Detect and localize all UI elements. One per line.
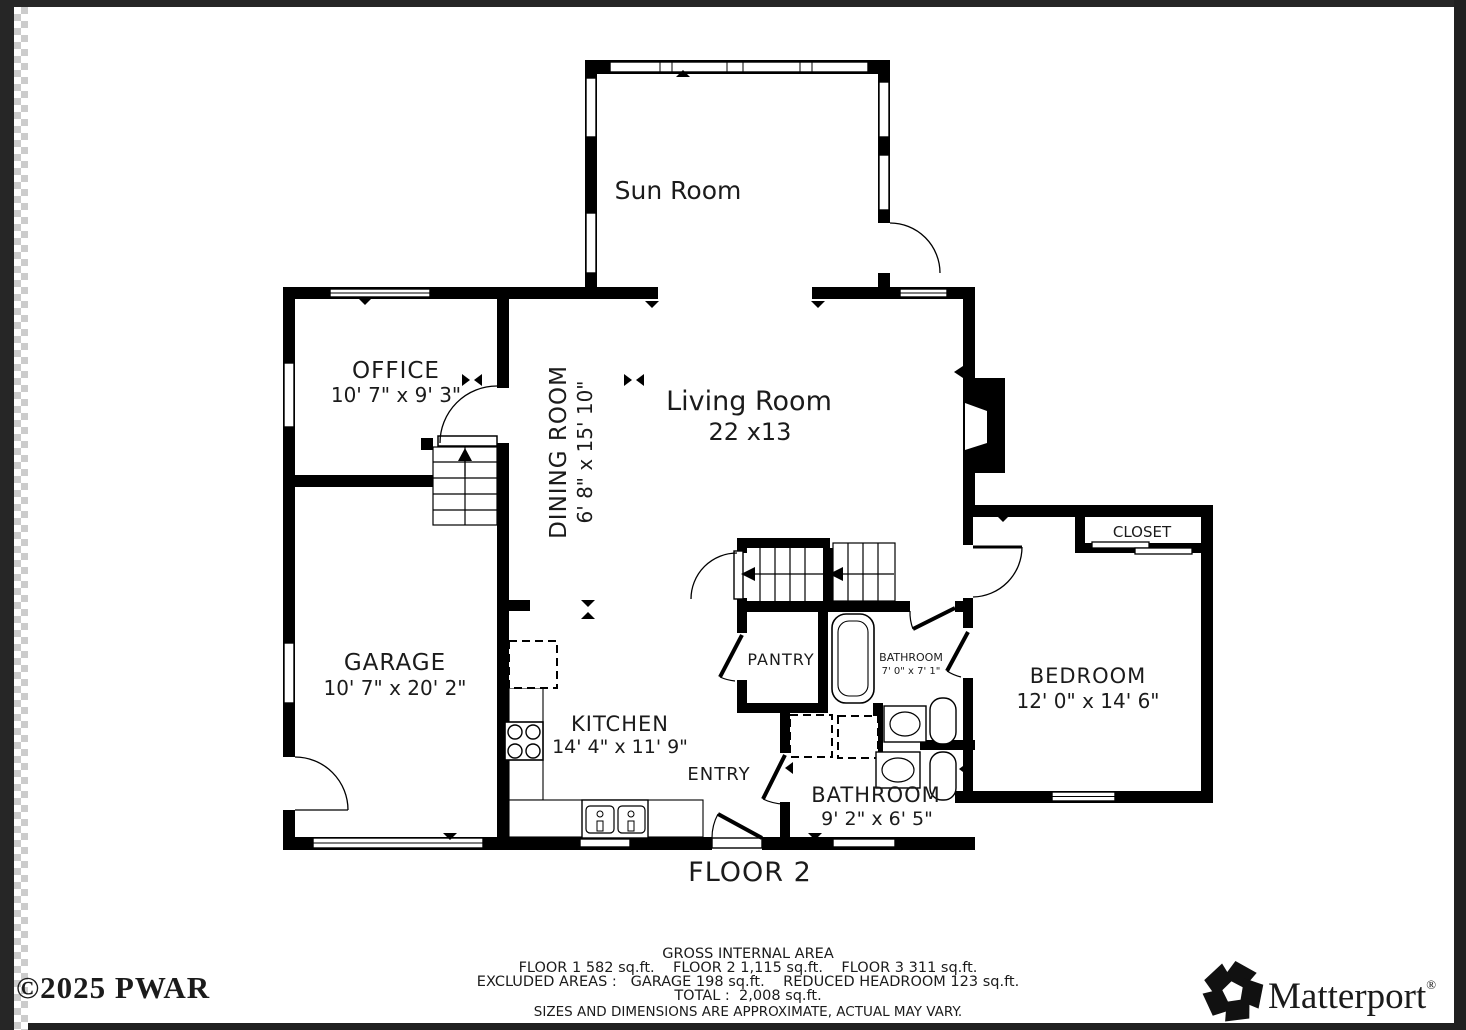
burner [526, 725, 540, 739]
window [284, 363, 294, 427]
wall [283, 475, 433, 487]
burner [526, 744, 540, 758]
wall [1201, 505, 1213, 803]
wall [963, 299, 975, 378]
window [580, 839, 630, 847]
room-label-sun-room: Sun Room [615, 176, 742, 205]
film-strip-edge [14, 0, 28, 1030]
window [833, 839, 895, 847]
wall [737, 601, 910, 612]
sink-bowl [890, 712, 920, 736]
floorplan-canvas: Sun Room OFFICE 10' 7" x 9' 3" DINING RO… [0, 0, 1466, 1030]
registered-trademark: ® [1426, 977, 1436, 992]
door-leaf [734, 551, 743, 599]
opening [878, 223, 890, 273]
room-label-bathroom-main: BATHROOM [811, 783, 941, 807]
dryer [838, 716, 878, 758]
burner [508, 744, 522, 758]
room-dims-office: 10' 7" x 9' 3" [331, 383, 461, 407]
left-edge-bar [0, 0, 14, 1030]
fireplace-notch [965, 403, 987, 450]
top-edge-bar [0, 0, 1466, 7]
wall [818, 612, 828, 713]
bathtub-inner [838, 621, 868, 696]
opening [283, 757, 295, 810]
room-label-living-room: Living Room [666, 386, 832, 417]
room-dims-dining-room: 6' 8" x 15' 10" [573, 380, 597, 523]
wall-stub [421, 438, 433, 450]
wall [823, 548, 833, 605]
room-dims-garage: 10' 7" x 20' 2" [323, 676, 466, 700]
window [284, 643, 294, 703]
matterport-wordmark: Matterport [1268, 976, 1427, 1017]
room-dims-bathroom-main: 9' 2" x 6' 5" [821, 808, 933, 830]
wall-stub [509, 600, 530, 611]
opening [658, 287, 812, 299]
door-leaf [438, 436, 497, 446]
entry-threshold [712, 838, 762, 848]
room-label-bedroom: BEDROOM [1030, 664, 1147, 688]
window [610, 62, 868, 72]
floorplan-page: Sun Room OFFICE 10' 7" x 9' 3" DINING RO… [0, 0, 1466, 1030]
bottom-edge-bar [28, 1023, 1466, 1030]
burner [508, 725, 522, 739]
wall [497, 299, 509, 850]
window [879, 82, 889, 137]
wall-stub [955, 601, 963, 612]
wall [737, 703, 828, 713]
faucet [597, 811, 603, 817]
room-dims-bathroom-small: 7' 0" x 7' 1" [882, 666, 941, 677]
matterport-logo-text: Matterport® [1268, 976, 1436, 1017]
toilet-bowl [882, 758, 914, 782]
slider-panel [1092, 542, 1149, 548]
window [879, 155, 889, 210]
wall [963, 473, 975, 505]
room-dims-kitchen: 14' 4" x 11' 9" [552, 736, 688, 758]
floor-label: FLOOR 2 [688, 857, 812, 888]
room-label-pantry: PANTRY [747, 650, 814, 669]
vanity-cabinet [930, 698, 956, 744]
room-label-entry: ENTRY [687, 764, 750, 785]
room-dims-bedroom: 12' 0" x 14' 6" [1016, 689, 1159, 713]
footer-total: TOTAL : 2,008 sq.ft. [673, 988, 821, 1004]
faucet [628, 811, 634, 817]
copyright-watermark: ©2025 PWAR [16, 970, 210, 1005]
opening [497, 388, 509, 443]
footer-disclaimer: SIZES AND DIMENSIONS ARE APPROXIMATE, AC… [534, 1004, 962, 1020]
room-label-garage: GARAGE [344, 650, 446, 676]
sink-drain [628, 821, 634, 831]
window [586, 213, 596, 273]
slider-panel [1135, 548, 1192, 554]
room-label-office: OFFICE [352, 358, 440, 384]
window [586, 78, 596, 137]
sink-drain [597, 821, 603, 831]
room-dims-living-room: 22 x13 [709, 418, 792, 446]
right-edge-bar [1454, 0, 1466, 1030]
room-label-kitchen: KITCHEN [571, 712, 669, 736]
wall [737, 538, 830, 548]
refrigerator [509, 641, 557, 688]
room-label-dining-room: DINING ROOM [546, 365, 572, 539]
room-label-closet: CLOSET [1113, 523, 1172, 541]
room-label-bathroom-small: BATHROOM [879, 651, 943, 664]
opening [963, 545, 973, 598]
washer [790, 715, 832, 757]
